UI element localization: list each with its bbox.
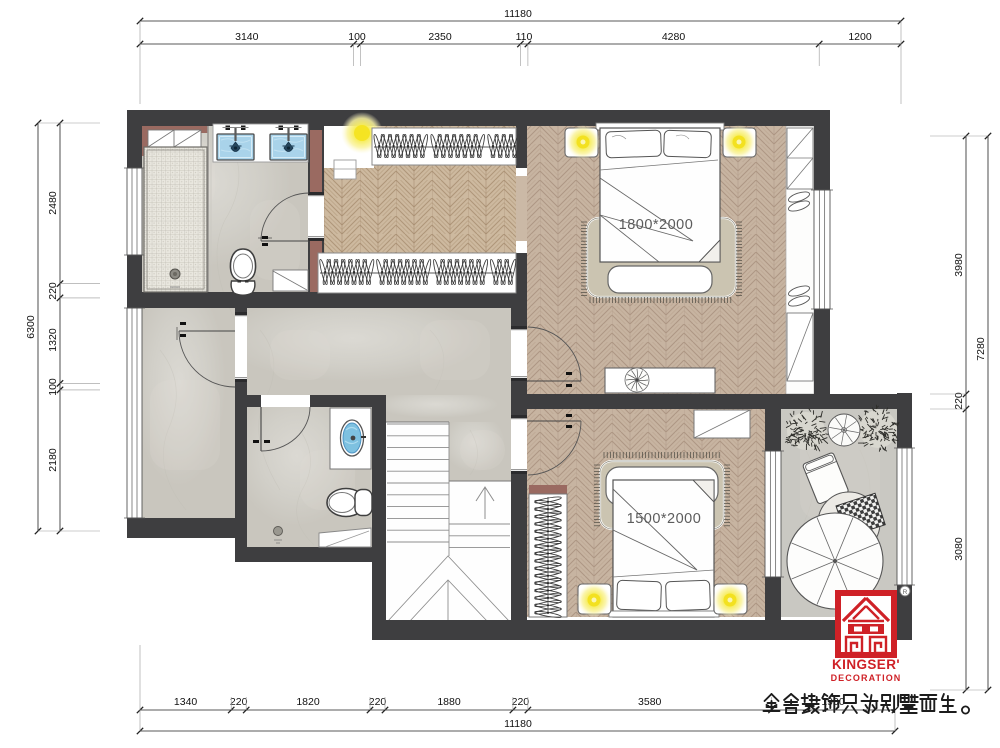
svg-text:4280: 4280 (662, 31, 686, 43)
svg-text:1820: 1820 (296, 696, 320, 708)
svg-text:220: 220 (230, 696, 248, 708)
svg-text:6300: 6300 (25, 315, 37, 339)
svg-text:R: R (903, 589, 908, 596)
svg-text:1200: 1200 (848, 31, 872, 43)
svg-text:7280: 7280 (975, 337, 987, 361)
svg-text:3980: 3980 (953, 253, 965, 277)
svg-text:2480: 2480 (47, 191, 59, 215)
svg-text:110: 110 (516, 31, 533, 43)
svg-text:3580: 3580 (638, 696, 662, 708)
svg-text:1340: 1340 (174, 696, 198, 708)
svg-text:100: 100 (348, 31, 366, 43)
svg-text:100: 100 (47, 378, 59, 396)
svg-text:2350: 2350 (428, 31, 452, 43)
svg-text:1880: 1880 (437, 696, 461, 708)
svg-text:11180: 11180 (504, 8, 532, 20)
svg-text:220: 220 (369, 696, 387, 708)
svg-text:1500*2000: 1500*2000 (627, 511, 702, 527)
svg-text:1320: 1320 (47, 328, 59, 352)
svg-text:1800*2000: 1800*2000 (619, 217, 694, 233)
svg-text:11180: 11180 (504, 718, 532, 730)
svg-text:KINGSER': KINGSER' (832, 657, 900, 672)
svg-text:220: 220 (512, 696, 530, 708)
svg-text:DECORATION: DECORATION (831, 673, 902, 683)
svg-text:3140: 3140 (235, 31, 259, 43)
svg-text:2180: 2180 (47, 448, 59, 472)
svg-text:220: 220 (47, 282, 59, 300)
svg-text:3080: 3080 (953, 537, 965, 561)
svg-text:220: 220 (953, 392, 965, 410)
